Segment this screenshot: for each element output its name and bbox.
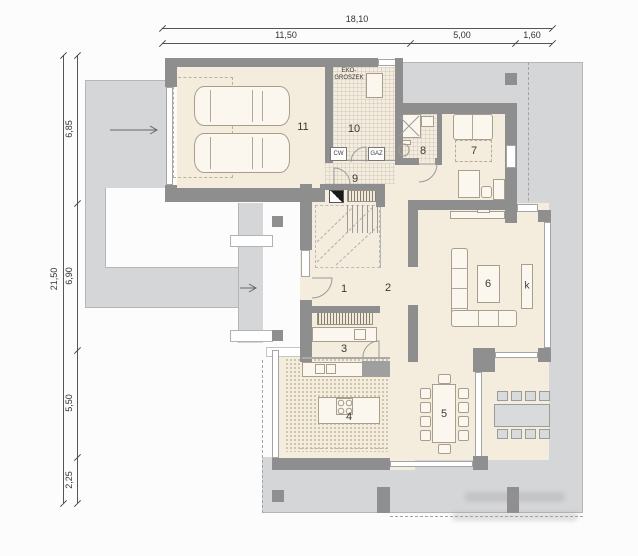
room-label-vestibule: 9 xyxy=(352,173,358,185)
plan-linework xyxy=(0,0,638,556)
room-label-dining: 5 xyxy=(441,408,447,420)
entrance-arrow-icon xyxy=(240,284,256,292)
room-label-living: 6 xyxy=(485,278,491,290)
utility-door-swing xyxy=(363,341,379,357)
room-label-utility: 3 xyxy=(341,343,347,355)
water-heater-label: CW xyxy=(330,151,347,158)
dimension-text: 18,10 xyxy=(346,14,369,24)
garage-door-swing xyxy=(334,168,350,184)
hob-burner xyxy=(338,400,344,406)
dimension-text: 6,85 xyxy=(64,120,74,138)
dimension-text: 2,25 xyxy=(64,471,74,489)
bathroom-door-swing xyxy=(419,164,437,182)
hob-burner xyxy=(338,408,344,414)
floor-plan: 1 2 3 4 5 6 7 8 9 10 11 k EKO-GROSZEK CW… xyxy=(0,0,638,556)
stairs-dashed-lines xyxy=(317,208,378,265)
dimension-line xyxy=(77,55,78,503)
dimension-text: 11,50 xyxy=(275,30,297,40)
fuel-storage-label: EKO-GROSZEK xyxy=(331,68,367,82)
watermark xyxy=(465,492,565,502)
toilet-bowl xyxy=(399,144,409,156)
room-label-garage: 11 xyxy=(297,121,308,133)
front-door-swing xyxy=(312,278,332,298)
dimension-text: 6,90 xyxy=(64,267,74,285)
dimension-text: 5,00 xyxy=(453,30,471,40)
room-label-bathroom: 8 xyxy=(420,145,426,157)
dimension-line xyxy=(162,43,552,44)
dimension-text: 1,60 xyxy=(523,30,541,40)
room-label-boiler: 10 xyxy=(348,123,360,135)
room-label-hall: 1 xyxy=(341,283,347,295)
watermark xyxy=(452,512,578,521)
dimension-line xyxy=(162,28,552,29)
hob-burner xyxy=(346,400,352,406)
dimension-text: 21,50 xyxy=(49,268,59,291)
room-label-corridor: 2 xyxy=(385,282,391,294)
room-label-office: 7 xyxy=(471,145,477,157)
boiler-door-swing xyxy=(351,147,366,162)
driveway-arrow-icon xyxy=(110,126,157,134)
gas-label: GAZ xyxy=(368,151,385,158)
shower-cross xyxy=(399,116,419,136)
room-label-kitchen: 4 xyxy=(346,411,352,423)
fireplace-label: k xyxy=(525,281,530,292)
dimension-text: 5,50 xyxy=(64,394,74,412)
